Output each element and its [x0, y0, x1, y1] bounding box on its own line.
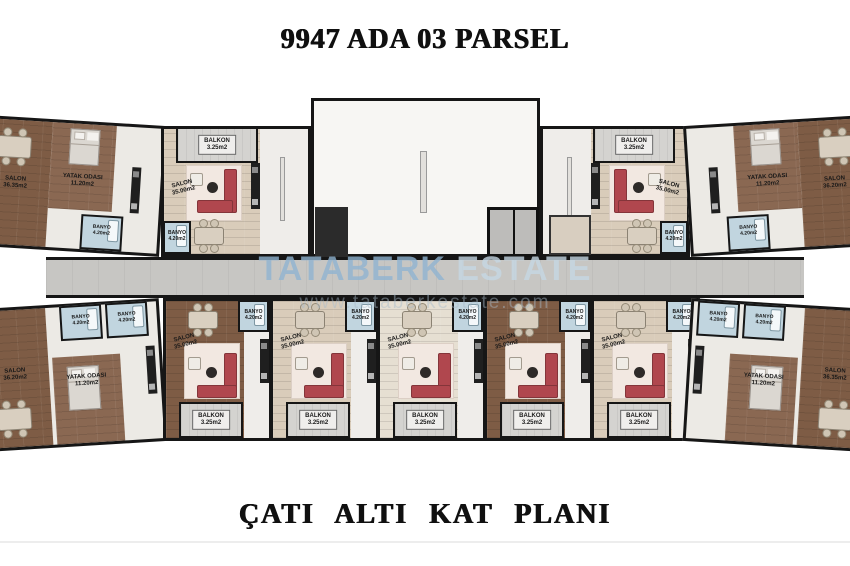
building-core: [311, 98, 540, 257]
kitchen-counter: [367, 339, 376, 383]
room-label-bathroom: BANYO 4.20m2: [347, 310, 374, 322]
kitchen-counter: [709, 167, 721, 213]
stair-rail: [280, 157, 285, 221]
shaft-box: [549, 215, 591, 255]
room-label-bathroom: BANYO 4.20m2: [107, 311, 146, 325]
room-label-bathroom: BANYO 4.20m2: [745, 313, 784, 327]
room-label-bathroom: BANYO 4.20m2: [662, 231, 686, 243]
room-label-bathroom: BANYO 4.20m2: [62, 314, 101, 328]
room-bathroom: BANYO 4.20m2: [163, 221, 191, 254]
room-bathroom: BANYO 4.20m2: [452, 300, 483, 332]
dining-table: [295, 311, 325, 329]
room-label-bathroom: BANYO 4.20m2: [699, 311, 738, 325]
unit-bottom-mid-2: BANYO 4.20m2 SALON 35.00m2 BALKON 3.25m2: [270, 298, 379, 441]
room-label-bathroom: BANYO 4.20m2: [165, 231, 189, 243]
floor-plan-page: 9947 ADA 03 PARSEL BANYO 4.20m2 SALON 36…: [0, 0, 850, 566]
dining-table: [0, 407, 32, 431]
room-label-bathroom: BANYO 4.20m2: [454, 310, 481, 322]
bottom-divider: [0, 541, 850, 543]
room-label-balcony: BALKON 3.25m2: [192, 410, 230, 430]
kitchen-counter: [693, 345, 705, 393]
sofa: [618, 200, 654, 213]
room-bathroom: BANYO 4.20m2: [660, 221, 688, 254]
room-label-balcony: BALKON 3.25m2: [513, 410, 551, 430]
dining-table: [509, 311, 539, 329]
room-balcony: BALKON 3.25m2: [179, 402, 243, 438]
kitchen-counter: [581, 339, 590, 383]
kitchen-counter: [251, 163, 260, 209]
room-label-bathroom: BANYO 4.20m2: [82, 224, 121, 238]
sofa: [304, 385, 344, 398]
kitchen-counter: [260, 339, 269, 383]
room-bathroom: BANYO 4.20m2: [79, 214, 123, 251]
room-bathroom: BANYO 4.20m2: [559, 300, 590, 332]
coffee-table: [527, 367, 538, 378]
dining-table: [0, 135, 32, 159]
room-label-salon: SALON 36.35m2: [813, 367, 850, 383]
unit-bottom-left: BANYO 4.20m2 BANYO 4.20m2 SALON 36.20m2 …: [0, 298, 167, 452]
stair-rail: [567, 157, 572, 221]
room-bathroom: BANYO 4.20m2: [727, 214, 771, 251]
room-label-balcony: BALKON 3.25m2: [406, 410, 444, 430]
kitchen-counter: [474, 339, 483, 383]
coffee-table: [634, 367, 645, 378]
floor-plan: BANYO 4.20m2 SALON 36.35m2 YATAK ODASI 1…: [0, 0, 850, 566]
room-label-salon: SALON 36.20m2: [0, 367, 37, 383]
sofa: [625, 385, 665, 398]
elevator: [487, 207, 539, 257]
bed: [68, 128, 100, 166]
armchair: [509, 357, 522, 370]
dining-table: [627, 227, 657, 245]
bed: [749, 128, 781, 166]
unit-bottom-right: BANYO 4.20m2 BANYO 4.20m2 SALON 36.35m2 …: [683, 298, 850, 452]
kitchen-counter: [146, 345, 158, 393]
armchair: [188, 357, 201, 370]
room-bathroom: BANYO 4.20m2: [238, 300, 269, 332]
armchair: [402, 357, 415, 370]
kitchen-counter: [591, 163, 600, 209]
room-balcony: BALKON 3.25m2: [607, 402, 671, 438]
dining-table: [616, 311, 646, 329]
unit-top-left: BANYO 4.20m2 SALON 36.35m2 YATAK ODASI 1…: [0, 115, 167, 257]
dining-table: [188, 311, 218, 329]
utility-shaft: [315, 207, 348, 257]
coffee-table: [633, 182, 644, 193]
kitchen-counter: [130, 167, 142, 213]
dining-table: [818, 135, 850, 159]
unit-top-right: BANYO 4.20m2 SALON 36.20m2 YATAK ODASI 1…: [683, 115, 850, 257]
room-balcony: BALKON 3.25m2: [286, 402, 350, 438]
room-bathroom: BANYO 4.20m2: [59, 304, 103, 341]
room-bathroom: BANYO 4.20m2: [345, 300, 376, 332]
corridor: [46, 257, 804, 298]
unit-bottom-mid-1: BANYO 4.20m2 SALON 35.00m2 BALKON 3.25m2: [163, 298, 272, 441]
dining-table: [194, 227, 224, 245]
coffee-table: [313, 367, 324, 378]
sofa: [411, 385, 451, 398]
room-label-balcony: BALKON 3.25m2: [198, 135, 236, 155]
dining-table: [818, 407, 850, 431]
room-balcony: BALKON 3.25m2: [593, 127, 675, 163]
unit-bottom-mid-4: BANYO 4.20m2 SALON 35.00m2 BALKON 3.25m2: [484, 298, 593, 441]
room-label-bathroom: BANYO 4.20m2: [729, 224, 768, 238]
dining-table: [402, 311, 432, 329]
sofa: [518, 385, 558, 398]
room-bathroom: BANYO 4.20m2: [105, 301, 149, 338]
room-balcony: BALKON 3.25m2: [393, 402, 457, 438]
room-label-bathroom: BANYO 4.20m2: [561, 310, 588, 322]
room-label-salon: SALON 36.35m2: [0, 175, 38, 191]
armchair: [295, 357, 308, 370]
core-column: [420, 151, 427, 213]
room-label-balcony: BALKON 3.25m2: [615, 135, 653, 155]
coffee-table: [207, 182, 218, 193]
page-title-bottom: ÇATI ALTI KAT PLANI: [0, 499, 850, 531]
coffee-table: [420, 367, 431, 378]
sofa: [197, 200, 233, 213]
armchair: [616, 357, 629, 370]
room-label-salon: SALON 36.20m2: [812, 175, 850, 191]
sofa: [197, 385, 237, 398]
coffee-table: [206, 367, 217, 378]
room-balcony: BALKON 3.25m2: [176, 127, 258, 163]
room-label-balcony: BALKON 3.25m2: [299, 410, 337, 430]
room-balcony: BALKON 3.25m2: [500, 402, 564, 438]
room-bathroom: BANYO 4.20m2: [742, 303, 786, 340]
room-bathroom: BANYO 4.20m2: [696, 301, 740, 338]
room-label-balcony: BALKON 3.25m2: [620, 410, 658, 430]
unit-top-mid-left: BANYO 4.20m2 SALON 35.00m2 BALKON 3.25m2: [161, 126, 311, 257]
room-label-bathroom: BANYO 4.20m2: [240, 310, 267, 322]
unit-bottom-mid-3: BANYO 4.20m2 SALON 35.00m2 BALKON 3.25m2: [377, 298, 486, 441]
